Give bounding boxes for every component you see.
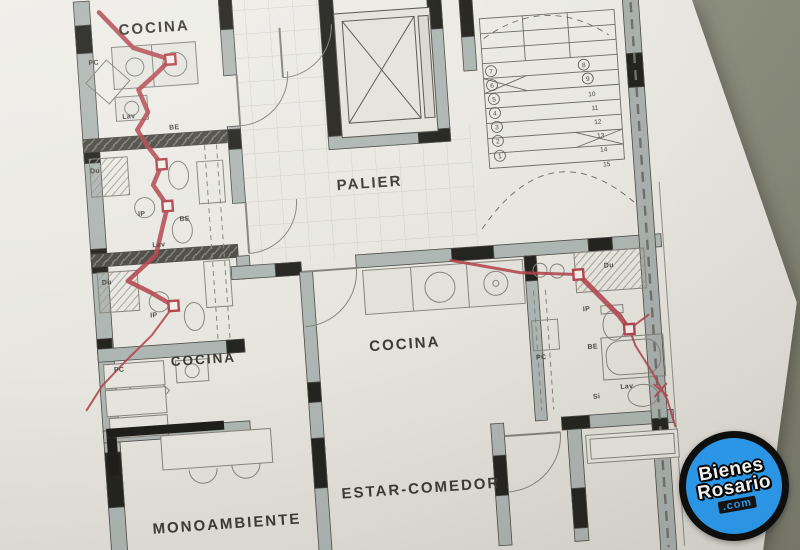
fixture-label-ip-mid2: IP <box>150 312 158 319</box>
stair-num-1: 1 <box>498 153 502 160</box>
fixture-label-du-mid2: Du <box>102 279 112 287</box>
stair-num-6: 6 <box>490 82 494 89</box>
fixture-label-ip-mid1: IP <box>138 211 146 218</box>
elevator-shaft <box>334 7 438 137</box>
fixture-label-be-mid1: BE <box>179 216 190 224</box>
stair-num-15: 15 <box>603 161 611 169</box>
stair-num-5: 5 <box>492 96 496 103</box>
stair-num-9: 9 <box>586 76 590 83</box>
stair-num-3: 3 <box>495 124 499 131</box>
room-label-estar-comedor: ESTAR-COMEDOR <box>341 475 501 503</box>
fixture-label-lav-right: Lav <box>620 383 633 391</box>
stair-num-13: 13 <box>597 132 605 140</box>
stair-num-12: 12 <box>594 119 602 127</box>
bottom-right-closet <box>586 429 680 463</box>
fixture-label-be-right: BE <box>587 343 598 351</box>
fixture-label-lav-top: Lav <box>122 113 135 121</box>
floorplan-photo: { "photo": { "paper_color": "#e8e7e1", "… <box>0 0 800 550</box>
fixture-label-pc-mid: PC <box>114 366 125 374</box>
fixture-label-du-mid1: Du <box>90 168 100 176</box>
room-label-monoambiente: MONOAMBIENTE <box>152 511 302 538</box>
fixture-label-be-top: BE <box>169 124 180 132</box>
stair-num-10: 10 <box>588 91 596 99</box>
stair-num-11: 11 <box>591 105 599 112</box>
paper-surface: 7 6 5 4 3 2 1 8 9 10 <box>0 0 800 550</box>
stair-numbers: 7 6 5 4 3 2 1 8 9 10 <box>485 58 611 176</box>
floor-plan-drawing: 7 6 5 4 3 2 1 8 9 10 <box>0 0 800 550</box>
room-label-cocina-mid: COCINA <box>170 350 236 370</box>
stair-num-2: 2 <box>496 138 500 145</box>
fixture-label-pc-top: PC <box>88 60 99 68</box>
fixture-label-pc-right: PC <box>536 354 547 362</box>
fixture-label-lav-mid1: Lav <box>152 241 165 249</box>
stair-num-14: 14 <box>600 146 608 154</box>
room-label-cocina-center: COCINA <box>369 333 441 355</box>
stair-num-8: 8 <box>582 62 586 69</box>
fixture-label-du-right: Du <box>604 262 614 270</box>
fixture-label-si-right: Si <box>593 393 601 400</box>
staircase <box>467 9 636 229</box>
stair-num-4: 4 <box>493 110 497 117</box>
fixture-label-ip-right: IP <box>583 306 591 313</box>
stair-num-7: 7 <box>489 69 493 76</box>
room-label-cocina-top: COCINA <box>118 17 190 39</box>
paper-sheet: 7 6 5 4 3 2 1 8 9 10 <box>0 0 800 550</box>
